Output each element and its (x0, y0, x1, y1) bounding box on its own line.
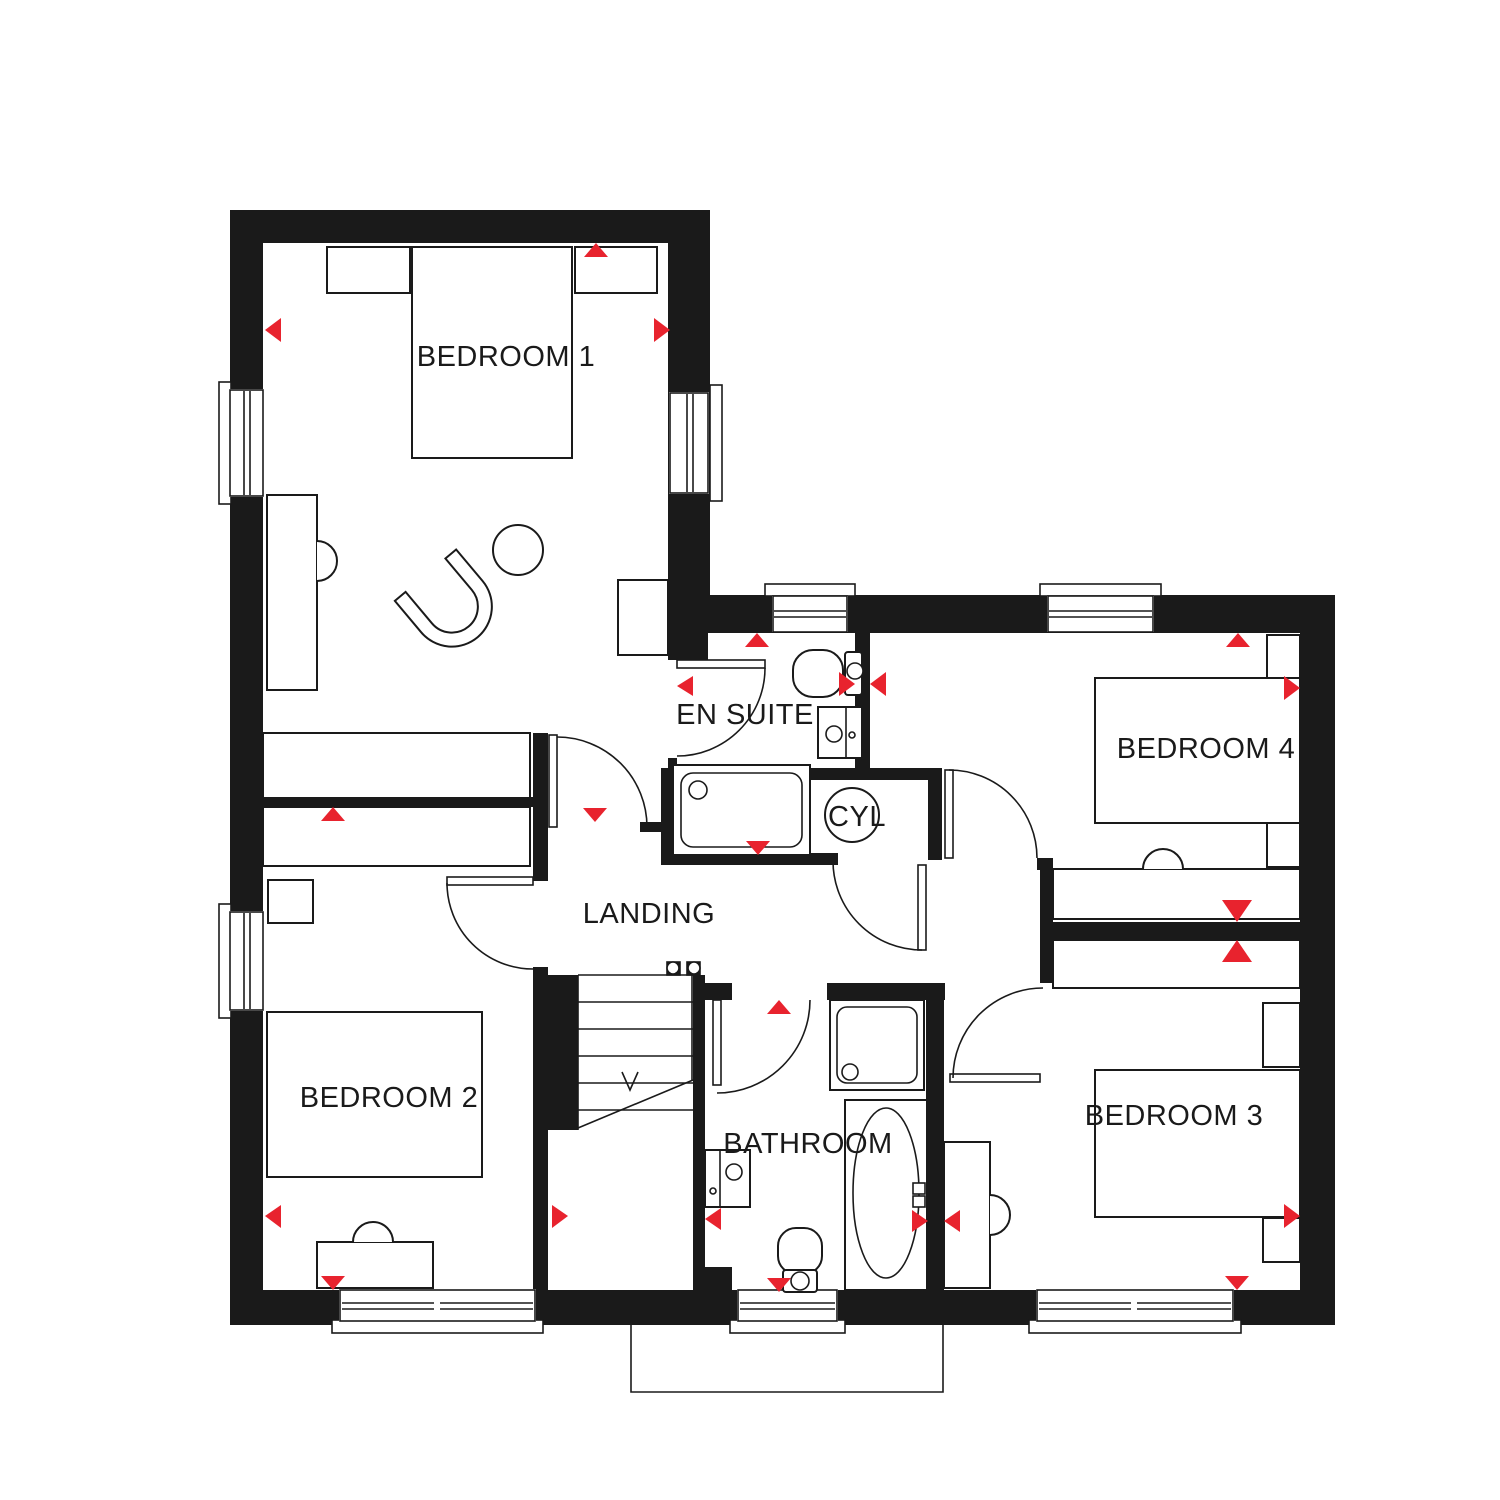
window-ensuite-top (765, 584, 855, 632)
wall-ensuite-corner (668, 633, 708, 660)
wardrobe-bedroom2 (263, 807, 530, 866)
newel-cap (667, 962, 679, 974)
wall-bedroom2-east-upper (533, 832, 548, 881)
window-bedroom2-bottom (332, 1289, 543, 1333)
bath-tap (913, 1183, 925, 1194)
room-label-landing: LANDING (583, 898, 715, 930)
wall-cyl-east (928, 768, 942, 860)
wall-bedroom3-west-jamb (1040, 858, 1053, 983)
window-bedroom2-left (219, 904, 264, 1018)
newel-cap (688, 962, 700, 974)
wall-right (1300, 595, 1335, 1325)
window-bedroom1-right (669, 385, 722, 501)
wall-bedroom4-bedroom3-divider (1047, 922, 1300, 940)
wall-bathroom-west (693, 975, 705, 1290)
basin-tap (826, 726, 842, 742)
room-label-ensuite: EN SUITE (676, 699, 814, 731)
room-label-bedroom1: BEDROOM 1 (417, 341, 596, 373)
toilet-bowl (778, 1228, 822, 1274)
bed-double (1095, 1070, 1300, 1217)
shower-drain (842, 1064, 858, 1080)
wall-shower-west (661, 768, 673, 865)
wardrobe-bedroom1 (263, 733, 530, 798)
dressing-table (267, 495, 317, 690)
dressing-table (944, 1142, 990, 1288)
toilet-flush (791, 1272, 809, 1290)
shower-bath-ensuite (673, 765, 810, 855)
bedside-table (1267, 823, 1300, 867)
bedside-table (327, 247, 410, 293)
room-label-bedroom2: BEDROOM 2 (300, 1082, 479, 1114)
basin-tap (726, 1164, 742, 1180)
bath-tap (913, 1196, 925, 1207)
floor-plan: BEDROOM 1 BEDROOM 2 BEDROOM 3 BEDROOM 4 … (0, 0, 1500, 1500)
bedside-table (268, 880, 313, 923)
wall-bathroom-north-stub (703, 983, 732, 1000)
window-bedroom3-bottom (1029, 1289, 1241, 1333)
side-table-round (493, 525, 543, 575)
wall-top-right-block (668, 595, 1335, 633)
window-bedroom1-left (219, 382, 264, 504)
toilet-bowl (793, 650, 843, 697)
room-label-bedroom3: BEDROOM 3 (1085, 1100, 1264, 1132)
basin-tap-small (710, 1188, 716, 1194)
wall-cyl-north (810, 768, 942, 780)
room-label-cylinder: CYL (828, 801, 886, 833)
bedside-table (1267, 635, 1300, 678)
window-bedroom4-top (1040, 584, 1161, 632)
wardrobe-bedroom3 (1053, 940, 1300, 988)
wall-bathroom-west-notch (705, 1267, 732, 1290)
room-label-bedroom4: BEDROOM 4 (1117, 733, 1296, 765)
bedside-table (1263, 1003, 1300, 1067)
desk (1053, 869, 1300, 919)
window-bathroom-bottom (730, 1289, 845, 1333)
wall-left (230, 210, 263, 1325)
wall-bedroom2-east-lower (533, 967, 548, 1290)
basin-tap-small (849, 732, 855, 738)
wall-stairwell-west (548, 975, 578, 1130)
shower-drain (689, 781, 707, 799)
wall-top-bedroom1 (230, 210, 710, 243)
chest-of-drawers (618, 580, 668, 655)
room-label-bathroom: BATHROOM (723, 1128, 892, 1160)
bedside-table (1263, 1218, 1300, 1262)
wall-wardrobe-jamb (533, 733, 548, 832)
toilet-flush (847, 663, 863, 679)
wall-bathroom-east (926, 983, 944, 1290)
